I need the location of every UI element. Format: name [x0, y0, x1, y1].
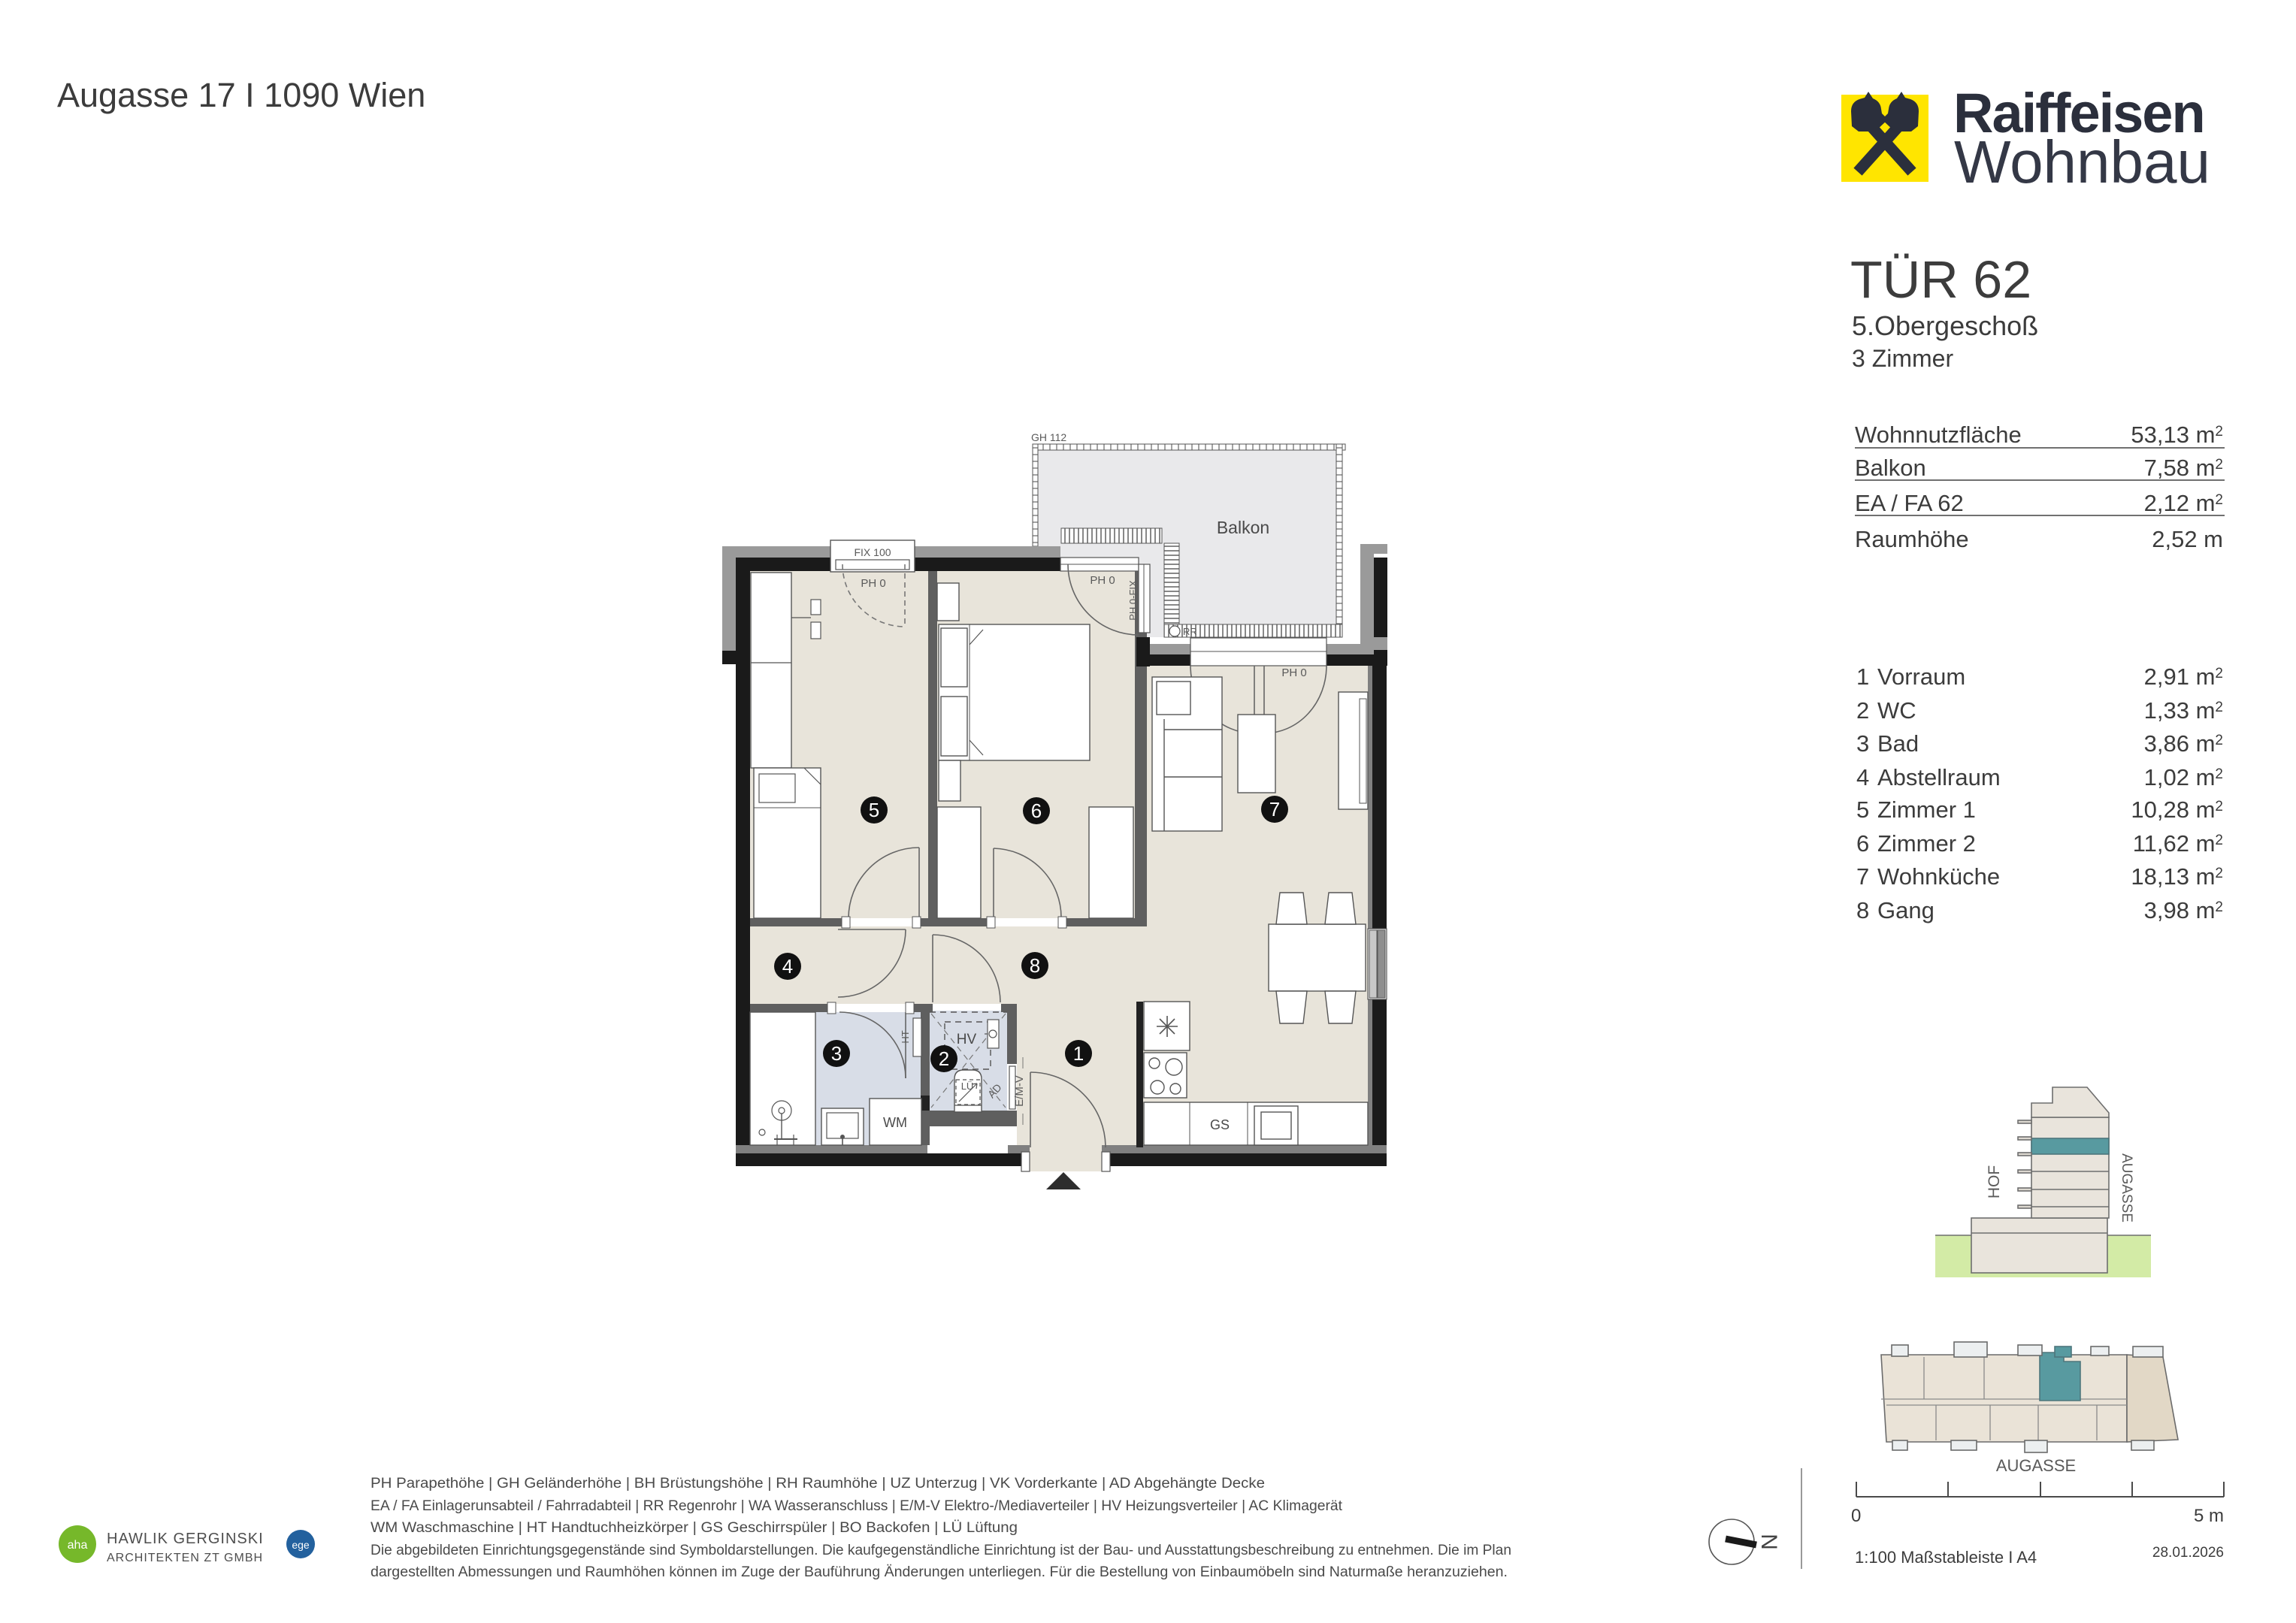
svg-text:3: 3	[1856, 730, 1869, 757]
svg-text:PH 0: PH 0	[861, 577, 885, 590]
svg-text:Vorraum: Vorraum	[1877, 663, 1965, 690]
svg-text:5.Obergeschoß: 5.Obergeschoß	[1852, 310, 2038, 341]
svg-text:6: 6	[1031, 799, 1042, 822]
svg-text:2,12 m2: 2,12 m2	[2144, 490, 2223, 516]
svg-text:GS: GS	[1210, 1117, 1230, 1132]
svg-text:WC: WC	[1877, 697, 1916, 724]
svg-text:3,86 m2: 3,86 m2	[2144, 730, 2223, 757]
svg-text:ARCHITEKTEN ZT GMBH: ARCHITEKTEN ZT GMBH	[107, 1552, 263, 1564]
svg-text:4: 4	[782, 955, 793, 978]
svg-text:11,62 m2: 11,62 m2	[2133, 830, 2223, 857]
svg-text:HOF: HOF	[1986, 1165, 2003, 1198]
svg-text:1,33 m2: 1,33 m2	[2144, 697, 2223, 724]
svg-text:Gang: Gang	[1877, 897, 1935, 923]
svg-text:7: 7	[1856, 863, 1869, 890]
svg-text:28.01.2026: 28.01.2026	[2152, 1545, 2224, 1561]
svg-text:2,91 m2: 2,91 m2	[2144, 663, 2223, 690]
svg-text:ege: ege	[292, 1539, 310, 1551]
svg-text:Wohnnutzfläche: Wohnnutzfläche	[1855, 422, 2022, 448]
svg-text:PH Parapethöhe | GH Geländerhö: PH Parapethöhe | GH Geländerhöhe | BH Br…	[371, 1476, 1265, 1492]
svg-text:E/M-V: E/M-V	[1013, 1075, 1026, 1107]
svg-text:Balkon: Balkon	[1217, 518, 1269, 537]
svg-text:TÜR 62: TÜR 62	[1850, 250, 2031, 309]
svg-text:EA / FA 62: EA / FA 62	[1855, 490, 1964, 516]
svg-text:53,13 m2: 53,13 m2	[2131, 422, 2223, 448]
svg-text:5 m: 5 m	[2194, 1506, 2224, 1526]
svg-text:RR: RR	[1183, 626, 1197, 637]
svg-text:Augasse 17 I 1090 Wien: Augasse 17 I 1090 Wien	[57, 76, 425, 114]
svg-text:PH 0: PH 0	[1281, 666, 1306, 679]
svg-text:Zimmer 2: Zimmer 2	[1877, 830, 1976, 857]
svg-text:8: 8	[1856, 897, 1869, 923]
svg-text:1,02 m2: 1,02 m2	[2144, 764, 2223, 790]
svg-text:AUGASSE: AUGASSE	[2119, 1153, 2134, 1223]
svg-text:LÜ: LÜ	[961, 1080, 974, 1092]
svg-text:GH 112: GH 112	[1031, 431, 1066, 443]
svg-text:3 Zimmer: 3 Zimmer	[1852, 345, 1953, 372]
svg-text:PH 0-FIX: PH 0-FIX	[1127, 580, 1139, 621]
svg-text:18,13 m2: 18,13 m2	[2131, 863, 2223, 890]
svg-text:Abstellraum: Abstellraum	[1877, 764, 2001, 790]
svg-text:Die abgebildeten Einrichtungsg: Die abgebildeten Einrichtungsgegenstände…	[371, 1543, 1511, 1558]
svg-text:2: 2	[1856, 697, 1869, 724]
svg-text:3: 3	[831, 1042, 842, 1065]
svg-text:WM Waschmaschine | HT Handtuch: WM Waschmaschine | HT Handtuchheizkörper…	[371, 1520, 1018, 1536]
svg-text:5: 5	[869, 799, 879, 821]
svg-text:Wohnküche: Wohnküche	[1877, 863, 2000, 890]
svg-text:HT: HT	[900, 1030, 911, 1043]
svg-text:2: 2	[939, 1047, 949, 1070]
svg-text:EA / FA Einlagerunsabteil / Fa: EA / FA Einlagerunsabteil / Fahrradabtei…	[371, 1498, 1343, 1514]
svg-text:Balkon: Balkon	[1855, 455, 1926, 481]
svg-text:6: 6	[1856, 830, 1869, 857]
svg-text:7: 7	[1269, 798, 1280, 821]
svg-text:10,28 m2: 10,28 m2	[2131, 796, 2223, 823]
svg-text:8: 8	[1030, 954, 1040, 977]
svg-text:AUGASSE: AUGASSE	[1996, 1456, 2076, 1475]
svg-text:Wohnbau: Wohnbau	[1954, 128, 2210, 195]
svg-text:Raumhöhe: Raumhöhe	[1855, 526, 1969, 552]
svg-text:2,52 m: 2,52 m	[2152, 526, 2223, 552]
svg-text:aha: aha	[68, 1539, 88, 1552]
svg-text:dargestellten Abmessungen und: dargestellten Abmessungen und Raumhöhen …	[371, 1564, 1508, 1580]
svg-text:HV: HV	[957, 1032, 977, 1047]
svg-text:1: 1	[1073, 1042, 1084, 1065]
svg-text:5: 5	[1856, 796, 1869, 823]
svg-text:Bad: Bad	[1877, 730, 1919, 757]
svg-text:3,98 m2: 3,98 m2	[2144, 897, 2223, 923]
svg-text:N: N	[1756, 1534, 1781, 1550]
svg-text:Zimmer 1: Zimmer 1	[1877, 796, 1976, 823]
svg-text:1: 1	[1856, 663, 1869, 690]
svg-text:WM: WM	[883, 1115, 907, 1130]
svg-text:0: 0	[1851, 1506, 1861, 1526]
svg-text:HAWLIK GERGINSKI: HAWLIK GERGINSKI	[107, 1531, 264, 1547]
svg-text:7,58 m2: 7,58 m2	[2144, 455, 2223, 481]
svg-text:1:100 Maßstableiste I A4: 1:100 Maßstableiste I A4	[1855, 1548, 2037, 1567]
svg-text:4: 4	[1856, 764, 1869, 790]
svg-text:PH 0: PH 0	[1090, 574, 1115, 587]
svg-text:FIX 100: FIX 100	[854, 546, 891, 558]
